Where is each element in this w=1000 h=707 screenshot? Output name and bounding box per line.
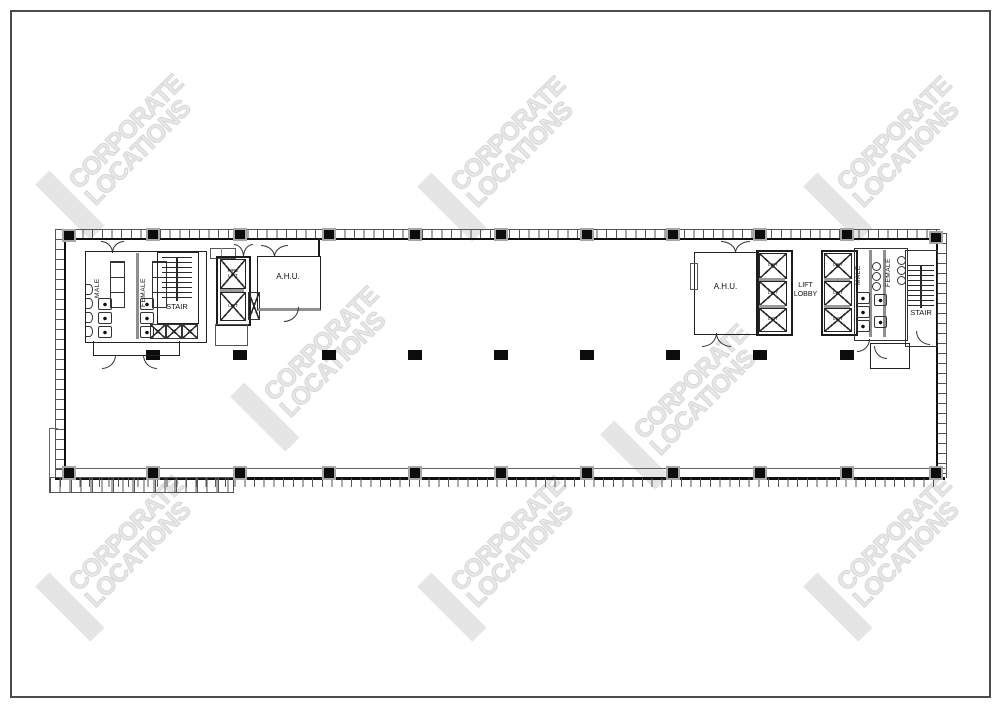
interior-column xyxy=(753,350,767,360)
hatch-panel xyxy=(182,324,198,339)
door-arc xyxy=(284,307,299,322)
door-arc xyxy=(102,355,116,369)
basin-fixture xyxy=(872,262,881,271)
urinal-fixture xyxy=(86,312,93,323)
urinal-fixture xyxy=(86,326,93,337)
left-ahu-room xyxy=(257,256,321,311)
wall-column xyxy=(580,466,594,480)
wall-column xyxy=(580,228,594,241)
urinal-fixture xyxy=(86,284,93,295)
wc-fixture xyxy=(856,320,870,332)
wc-fixture xyxy=(98,298,112,310)
basin-fixture xyxy=(872,282,881,291)
wall-column xyxy=(840,466,854,480)
corner-column xyxy=(929,231,943,244)
wall-column xyxy=(146,228,160,241)
basin-fixture xyxy=(872,272,881,281)
interior-column xyxy=(666,350,680,360)
lift-cell: LIFT xyxy=(759,253,787,279)
floor-plan: MALE FEMALE STAIR FIRELIFT xyxy=(0,0,1000,707)
right-ahu-label: A.H.U. xyxy=(694,282,757,293)
interior-column xyxy=(494,350,508,360)
lift-cell: LIFT xyxy=(759,281,787,306)
lift-cell: LIFT xyxy=(824,253,852,279)
corner-column xyxy=(929,466,943,480)
wc-fixture xyxy=(98,326,112,338)
door-arc xyxy=(857,339,870,352)
toilet-partition-wall xyxy=(136,253,139,339)
stair-treads xyxy=(162,257,192,301)
right-female-toilet-label: FEMALE xyxy=(885,252,897,292)
wall-column xyxy=(840,228,854,241)
lift-lobby-label: LIFT LOBBY xyxy=(787,281,824,301)
interior-column xyxy=(580,350,594,360)
wall-column xyxy=(666,228,680,241)
wc-fixture xyxy=(140,312,154,324)
wall-column xyxy=(753,466,767,480)
bottom-left-ledge xyxy=(49,477,234,493)
shaft-stub xyxy=(215,324,248,346)
fire-lift-cell: FIRELIFT xyxy=(220,259,246,289)
door-arc xyxy=(143,355,157,369)
wall-column xyxy=(408,466,422,480)
door-arc xyxy=(716,333,731,347)
wall-column xyxy=(146,466,160,480)
wc-fixture xyxy=(856,292,870,304)
door-arc xyxy=(702,333,717,347)
wall-column xyxy=(322,228,336,241)
right-male-toilet-label: MALE xyxy=(855,260,867,290)
lift-cell: LIFT xyxy=(824,308,852,332)
corner-column xyxy=(62,466,76,480)
wc-fixture xyxy=(874,294,887,306)
hatch-panel xyxy=(166,324,182,339)
wall-segment xyxy=(318,238,320,257)
wall-column xyxy=(753,228,767,241)
floorplan-page: CORPORATELOCATIONS CORPORATELOCATIONS CO… xyxy=(0,0,1000,707)
corner-column xyxy=(62,229,76,242)
urinal-fixture xyxy=(86,298,93,309)
lift-cell: LIFT xyxy=(220,292,246,321)
wall-column xyxy=(233,228,247,241)
right-ahu-room xyxy=(694,252,759,335)
right-stair-label: STAIR xyxy=(902,308,940,318)
wc-fixture xyxy=(140,298,154,310)
stair-treads xyxy=(908,265,934,308)
interior-column xyxy=(233,350,247,360)
wall-column xyxy=(408,228,422,241)
left-outer-step xyxy=(49,428,58,479)
left-stair-label: STAIR xyxy=(157,302,197,312)
wc-fixture xyxy=(98,312,112,324)
interior-column xyxy=(408,350,422,360)
lift-label: LIFT xyxy=(221,293,245,320)
wc-fixture xyxy=(856,306,870,318)
lift-cell: LIFT xyxy=(759,308,787,332)
pilaster xyxy=(690,263,698,290)
lift-cell: LIFT xyxy=(824,281,852,306)
wall-column xyxy=(494,228,508,241)
wall-column xyxy=(233,466,247,480)
door-arc xyxy=(112,241,124,253)
interior-column xyxy=(840,350,854,360)
left-ahu-label: A.H.U. xyxy=(257,272,319,283)
hatch-panel xyxy=(150,324,166,339)
wall-column xyxy=(666,466,680,480)
vestibule xyxy=(93,341,180,356)
wc-fixture xyxy=(874,316,887,328)
interior-column xyxy=(322,350,336,360)
wall-column xyxy=(494,466,508,480)
wall-column xyxy=(322,466,336,480)
toilet-cubicles xyxy=(110,261,125,308)
